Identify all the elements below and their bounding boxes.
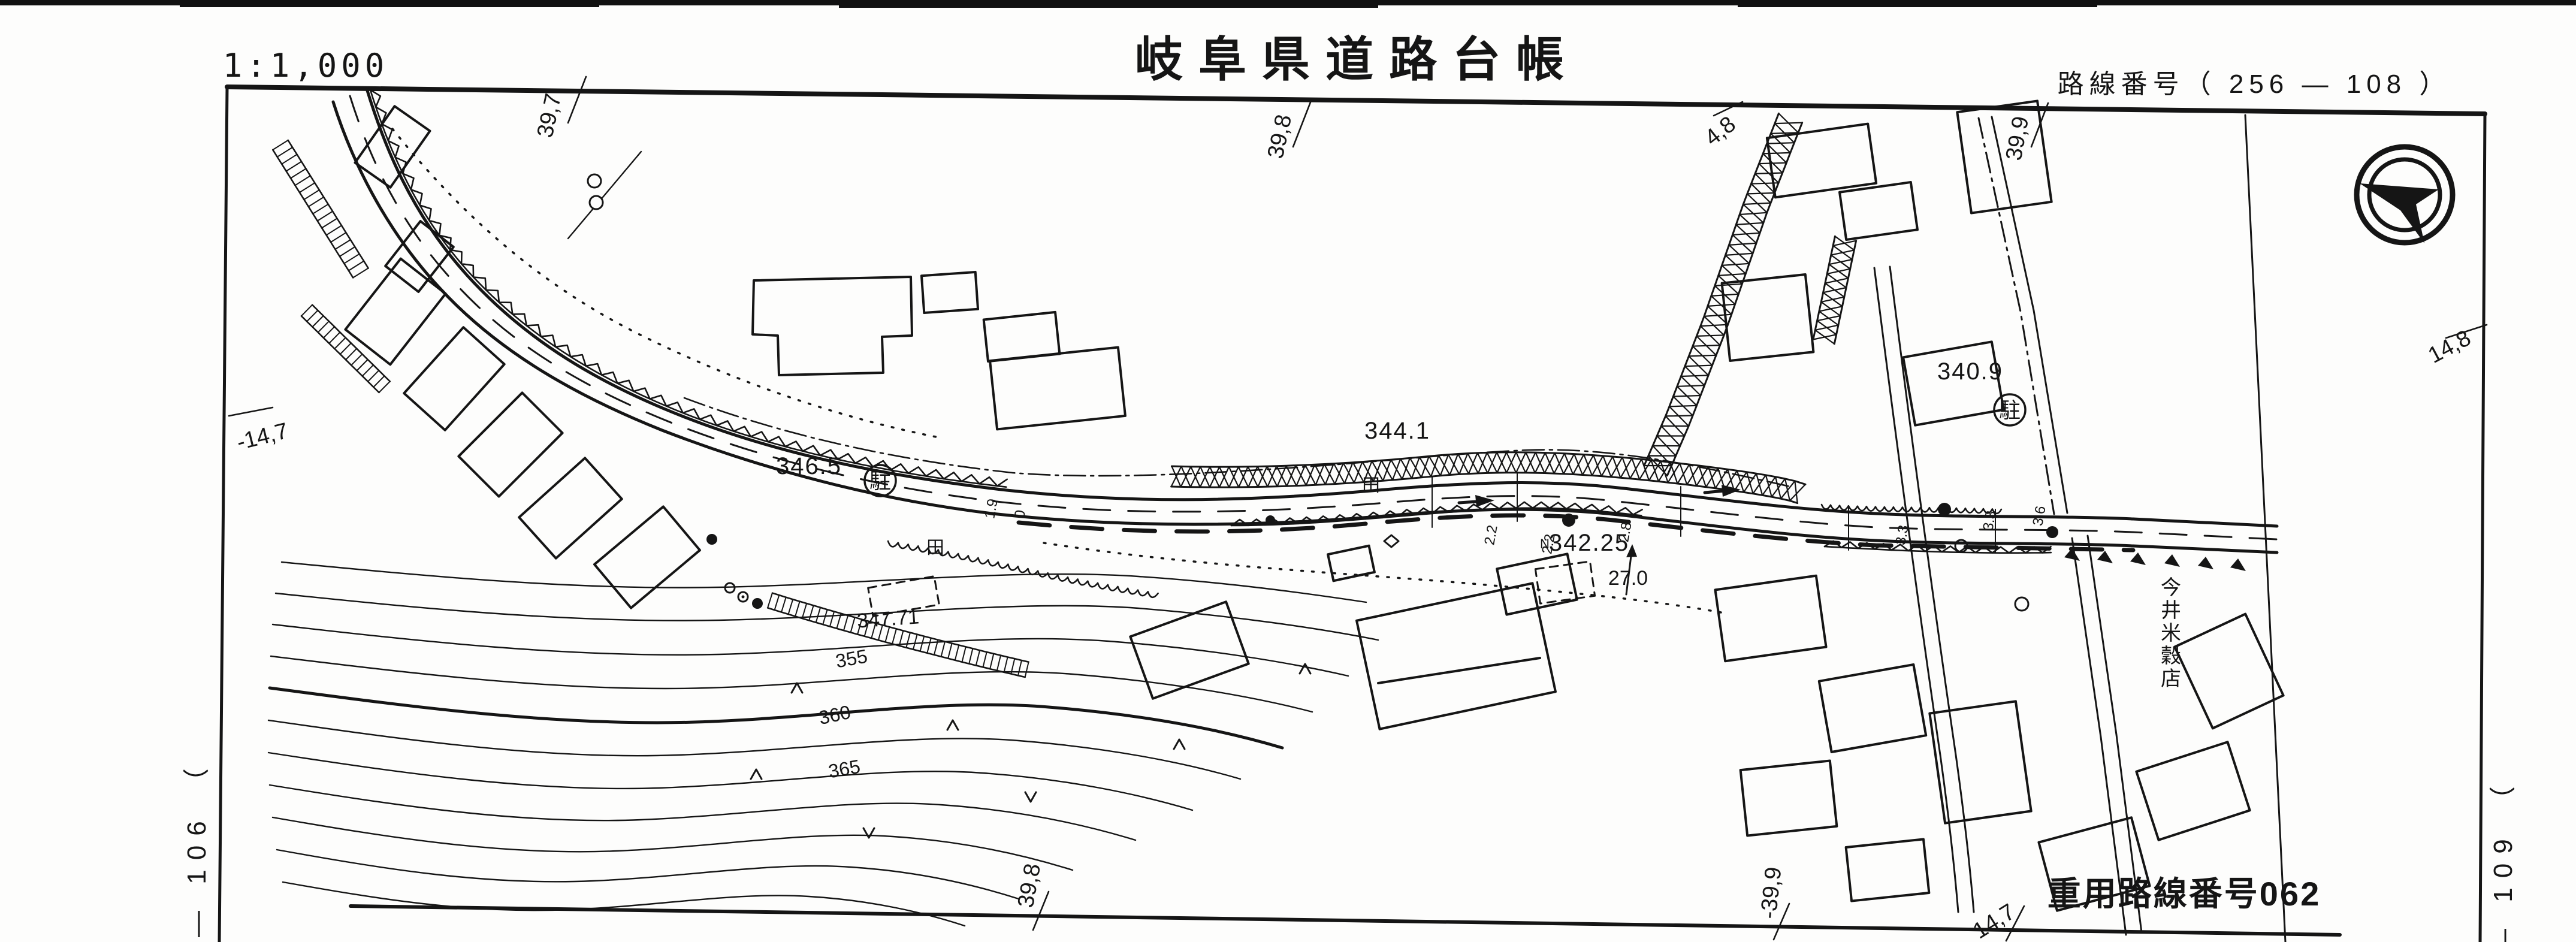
reuse-route-label: 重用路線番号062 <box>2047 877 2321 911</box>
generated-hatch-line <box>304 190 319 200</box>
road-width-label: 3.3 <box>1981 509 1998 532</box>
contour-label: 355 <box>834 647 869 671</box>
map-frame <box>219 87 2485 942</box>
boundary-tick-label: -39,9 <box>1757 866 1786 920</box>
generated-hatch-line <box>295 176 310 185</box>
generated-hatch-line <box>340 247 355 256</box>
generated-hatch-line <box>286 162 301 171</box>
generated-hatch-line <box>823 609 827 624</box>
generated-hatch-line <box>309 197 324 207</box>
parking-badge-circle <box>865 394 2025 496</box>
generated-hatch-line <box>1025 662 1029 677</box>
road-width-label: 1.9 <box>983 497 1000 520</box>
road-width-label: 2.2 <box>1540 533 1557 555</box>
generated-hatch-line <box>291 169 306 179</box>
generated-hatch-line <box>1644 113 1779 466</box>
generated-hatch-line <box>795 602 799 617</box>
generated-hatch-line <box>1004 657 1008 672</box>
adjacent-sheet-left-label: — 106 （ <box>184 759 210 937</box>
generated-hatch-line <box>976 650 980 665</box>
generated-hatch-line <box>997 656 1001 671</box>
survey-point-icons <box>706 503 2058 611</box>
utility-pole-icon <box>568 152 641 238</box>
road-width-label: 3.3 <box>1894 524 1911 546</box>
generated-hatch-line <box>781 597 786 612</box>
generated-hatch-line <box>373 376 384 387</box>
road-width-label: 3.6 <box>2031 505 2048 527</box>
rice-store-label: 今井米穀店 <box>2155 576 2184 690</box>
generated-hatch-line <box>962 647 966 662</box>
generated-hatch-line <box>273 140 288 150</box>
parking-symbol-label: 駐 <box>1999 400 2021 421</box>
generated-hatch-line <box>340 343 351 355</box>
generated-hatch-line <box>1171 452 1798 503</box>
road-width-label: 2.2 <box>1482 524 1500 546</box>
generated-hatch-line <box>927 638 931 653</box>
generated-hatch-line <box>830 612 834 627</box>
generated-hatch-line <box>809 605 813 620</box>
generated-hatch-line <box>307 310 318 322</box>
generated-hatch-line <box>351 354 362 366</box>
generated-hatch-line <box>357 360 368 371</box>
generated-hatch-line <box>368 370 379 382</box>
scan-edge-artifact <box>0 0 2576 8</box>
elevation-label: 346.5 <box>776 454 842 478</box>
sheet-title: 岐阜県道路台帳 <box>1135 36 1580 84</box>
generated-hatch-line <box>318 321 329 333</box>
generated-hatch-line <box>277 147 292 157</box>
generated-hatch-line <box>948 644 952 659</box>
generated-hatch-line <box>322 219 337 228</box>
generated-hatch-line <box>313 204 328 214</box>
generated-hatch-line <box>346 349 357 360</box>
generated-hatch-line <box>990 654 993 669</box>
generated-hatch-line <box>768 593 772 608</box>
scale-label: 1:1,000 <box>223 50 389 82</box>
road-edge-hatching <box>273 90 2051 677</box>
generated-hatch-line <box>983 652 987 667</box>
generated-hatch-line <box>844 615 848 630</box>
generated-hatch-line <box>1815 236 1854 344</box>
road-width-label: 2.8 <box>1617 521 1634 543</box>
generated-hatch-line <box>353 268 368 278</box>
generated-hatch-line <box>941 642 945 657</box>
generated-hatch-line <box>344 254 359 264</box>
generated-hatch-line <box>282 155 297 164</box>
generated-hatch-line <box>913 635 917 650</box>
generated-hatch-line <box>327 225 342 235</box>
generated-hatch-line <box>334 338 345 349</box>
contour-label: 365 <box>827 757 862 781</box>
generated-hatch-line <box>318 212 333 221</box>
generated-hatch-line <box>1667 123 1802 476</box>
generated-hatch-line <box>324 327 334 338</box>
parking-symbol-label: 駐 <box>869 470 891 492</box>
generated-hatch-line <box>363 365 373 376</box>
contour-lines <box>268 562 1378 926</box>
north-arrow-icon <box>2357 147 2453 243</box>
generated-hatch-line <box>969 648 973 663</box>
route-number-label: 路線番号（ 256 — 108 ） <box>2058 71 2451 98</box>
generated-hatch-line <box>775 595 780 610</box>
generated-hatch-line <box>955 645 959 660</box>
generated-hatch-line <box>335 240 351 249</box>
elevation-label: 347.71 <box>856 606 920 631</box>
paddy-symbol-label: 田 <box>1362 477 1380 495</box>
generated-hatch-line <box>892 629 896 644</box>
elevation-label: 344.1 <box>1364 419 1430 443</box>
generated-hatch-line <box>899 631 904 646</box>
generated-hatch-line <box>300 183 315 192</box>
generated-hatch-line <box>312 316 323 327</box>
paddy-symbol-label: 田 <box>926 539 944 557</box>
road-ledger-sheet: 1:1,000 岐阜県道路台帳 路線番号（ 256 — 108 ） 重用路線番号… <box>0 0 2576 942</box>
generated-hatch-line <box>789 599 793 614</box>
vegetation-marks <box>751 664 1310 838</box>
generated-hatch-line <box>301 305 312 316</box>
generated-hatch-line <box>816 608 820 623</box>
adjacent-sheet-right-label: — 109 （ <box>2490 777 2517 942</box>
elevation-label: 27.0 <box>1608 568 1648 588</box>
generated-hatch-line <box>379 382 390 393</box>
generated-hatch-line <box>851 617 855 632</box>
generated-hatch-line <box>331 233 346 242</box>
generated-hatch-line <box>1018 660 1022 675</box>
generated-hatch-line <box>802 603 807 618</box>
elevation-label: 340.9 <box>1937 360 2003 384</box>
generated-hatch-line <box>906 633 910 648</box>
generated-hatch-line <box>329 332 340 343</box>
generated-hatch-line <box>349 261 364 271</box>
